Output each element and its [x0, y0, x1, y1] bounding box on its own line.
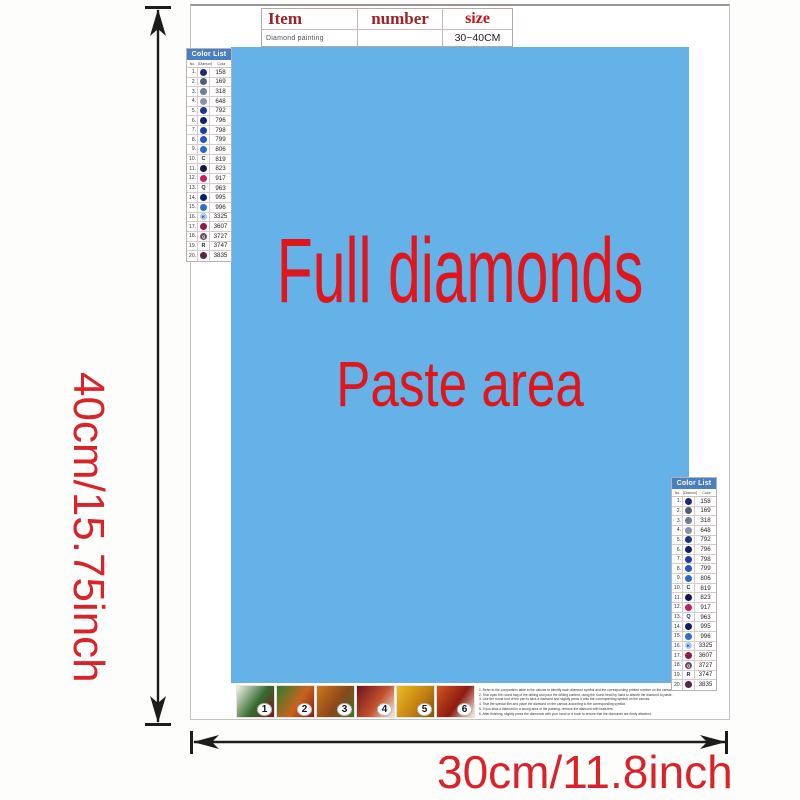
color-list-row: 14.995: [187, 193, 231, 203]
color-list-dmc-code: 796: [695, 546, 716, 553]
color-list-row: 15.996: [672, 632, 716, 642]
color-list-title: Color List: [187, 49, 231, 60]
paste-area-title-line2: Paste area: [336, 352, 584, 416]
diamond-symbol-icon: C: [198, 155, 210, 164]
color-list-dmc-code: 917: [210, 175, 231, 182]
color-list-row: 5.792: [672, 536, 716, 546]
diamond-symbol-icon: [683, 603, 695, 612]
diamond-symbol-icon: [683, 555, 695, 564]
color-list-row: 10.C819: [672, 584, 716, 594]
diamond-symbol-icon: [198, 251, 210, 261]
diamond-symbol-icon: C: [683, 584, 695, 593]
color-list: Color List No. Diamond Color 1.1582.1693…: [671, 477, 717, 691]
diamond-symbol-icon: [683, 632, 695, 641]
color-list-dmc-code: 917: [695, 604, 716, 611]
diamond-symbol-icon: [683, 651, 695, 660]
color-list-col-symbol: Diamond: [684, 491, 697, 495]
color-list-dmc-code: 819: [210, 156, 231, 163]
color-list-row: 4.648: [672, 526, 716, 536]
color-list-dmc-code: 3325: [695, 642, 716, 649]
color-list-row: 9.806: [187, 145, 231, 155]
diamond-symbol-icon: [198, 164, 210, 173]
color-list-dmc-code: 798: [210, 127, 231, 134]
item-table-cell-size: 30~40CM: [443, 30, 512, 46]
color-list-col-color: Color: [697, 491, 716, 495]
paste-area-title-line1: Full diamonds: [277, 225, 644, 317]
color-list-dmc-code: 796: [210, 117, 231, 124]
canvas-sheet: Item number size Diamond painting 30~40C…: [190, 4, 730, 720]
step-number-badge: 6: [457, 703, 472, 716]
item-table-header-item: Item: [262, 9, 358, 30]
diamond-symbol-icon: [683, 526, 695, 535]
diamond-symbol-icon: R: [198, 242, 210, 251]
color-list-row: 20.3835: [672, 680, 716, 690]
color-list-dmc-code: 806: [210, 146, 231, 153]
color-list-row: 2.169: [187, 78, 231, 88]
color-list-dmc-code: 792: [210, 107, 231, 114]
color-list-row-number: 8.: [672, 564, 683, 573]
diamond-symbol-icon: [198, 222, 210, 231]
color-list-dmc-code: 169: [695, 507, 716, 514]
color-list-row-number: 14.: [672, 622, 683, 631]
color-list-row: 11.823: [187, 164, 231, 174]
color-list-row-number: 19.: [187, 242, 198, 251]
color-list-row-number: 9.: [187, 145, 198, 154]
color-list-rows: 1.1582.1693.3184.6485.7926.7967.7988.799…: [187, 68, 231, 261]
diamond-symbol-icon: [198, 87, 210, 96]
color-list-col-no: No.: [672, 491, 684, 495]
color-list-dmc-code: 819: [695, 585, 716, 592]
color-list-row: 7.798: [187, 126, 231, 136]
step-number-badge: 3: [337, 703, 352, 716]
paste-area: Full diamonds Paste area: [231, 47, 689, 683]
color-list-row: 10.C819: [187, 155, 231, 165]
color-list-row: 18.Q3727: [187, 232, 231, 242]
color-list-dmc-code: 799: [695, 565, 716, 572]
color-list-row: 13.Q963: [187, 184, 231, 194]
color-list-dmc-code: 648: [695, 527, 716, 534]
height-dimension-arrow: [140, 0, 180, 732]
color-list-row-number: 17.: [672, 651, 683, 660]
color-list-row-number: 16.: [672, 642, 683, 651]
color-list-row-number: 6.: [672, 545, 683, 554]
diamond-symbol-icon: Q: [683, 661, 695, 670]
product-size-diagram: { "dimensions": { "height_label": "40cm/…: [0, 0, 800, 800]
color-list-row-number: 2.: [187, 78, 198, 87]
color-list-dmc-code: 648: [210, 98, 231, 105]
color-list-dmc-code: 823: [695, 594, 716, 601]
diamond-symbol-icon: K: [198, 213, 210, 222]
item-table: Item number size Diamond painting 30~40C…: [261, 8, 513, 47]
color-list-row-number: 9.: [672, 574, 683, 583]
diamond-symbol-icon: [198, 68, 210, 77]
diamond-symbol-icon: [198, 145, 210, 154]
color-list-row: 19.R3747: [187, 242, 231, 252]
color-list-row-number: 10.: [672, 584, 683, 593]
color-list-row-number: 18.: [672, 661, 683, 670]
color-list-row-number: 1.: [187, 68, 198, 77]
color-list-row: 15.996: [187, 203, 231, 213]
color-list-row: 6.796: [187, 116, 231, 126]
step-photo: 5: [396, 685, 435, 718]
instruction-line: 6. After finishing, slightly press the d…: [479, 712, 729, 717]
color-list-dmc-code: 3607: [210, 223, 231, 230]
color-list-row-number: 13.: [672, 613, 683, 622]
diamond-symbol-icon: [683, 622, 695, 631]
diamond-symbol-icon: Q: [198, 232, 210, 241]
color-list-row: 4.648: [187, 97, 231, 107]
diamond-symbol-icon: [198, 126, 210, 135]
item-table-cell-item: Diamond painting: [262, 30, 358, 46]
color-list-row: 5.792: [187, 107, 231, 117]
color-list-col-no: No.: [187, 62, 199, 66]
color-list-row-number: 4.: [187, 97, 198, 106]
color-list-dmc-code: 996: [695, 633, 716, 640]
color-list-col-symbol: Diamond: [199, 62, 212, 66]
color-list-dmc-code: 158: [695, 498, 716, 505]
step-photo: 4: [356, 685, 395, 718]
color-list-dmc-code: 3727: [210, 233, 231, 240]
color-list-dmc-code: 963: [695, 614, 716, 621]
diamond-symbol-icon: [683, 507, 695, 516]
color-list-row-number: 11.: [187, 164, 198, 173]
item-table-header-number: number: [358, 9, 443, 30]
color-list-dmc-code: 169: [210, 78, 231, 85]
color-list-dmc-code: 318: [695, 517, 716, 524]
color-list-dmc-code: 806: [695, 575, 716, 582]
step-photos: 123456: [236, 685, 475, 718]
color-list-row: 20.3835: [187, 251, 231, 261]
step-photo: 2: [276, 685, 315, 718]
color-list-dmc-code: 3325: [210, 213, 231, 220]
color-list-row: 8.799: [672, 564, 716, 574]
color-list-dmc-code: 3747: [210, 242, 231, 249]
color-list-row: 3.318: [187, 87, 231, 97]
color-list-dmc-code: 823: [210, 165, 231, 172]
step-photo: 3: [316, 685, 355, 718]
color-list-row: 13.Q963: [672, 613, 716, 623]
item-table-cell-number: [358, 30, 443, 46]
color-list-dmc-code: 798: [695, 556, 716, 563]
color-list-row: 7.798: [672, 555, 716, 565]
color-list-dmc-code: 318: [210, 88, 231, 95]
step-number-badge: 1: [257, 703, 272, 716]
color-list-row-number: 7.: [672, 555, 683, 564]
color-list-row-number: 10.: [187, 155, 198, 164]
color-list-row: 1.158: [672, 497, 716, 507]
color-list-row: 16.K3325: [187, 213, 231, 223]
color-list-row-number: 20.: [187, 251, 198, 261]
color-list-row: 11.823: [672, 593, 716, 603]
color-list-row-number: 15.: [187, 203, 198, 212]
diamond-symbol-icon: [683, 516, 695, 525]
diamond-symbol-icon: [198, 107, 210, 116]
item-table-header-size: size: [443, 9, 512, 30]
color-list-title: Color List: [672, 478, 716, 489]
diamond-symbol-icon: [683, 545, 695, 554]
step-number-badge: 4: [377, 703, 392, 716]
diamond-symbol-icon: [198, 78, 210, 87]
color-list-row-number: 18.: [187, 232, 198, 241]
diamond-symbol-icon: [683, 564, 695, 573]
color-list-row: 17.3607: [672, 651, 716, 661]
color-list-row-number: 20.: [672, 680, 683, 690]
color-list-row: 6.796: [672, 545, 716, 555]
diamond-symbol-icon: [198, 135, 210, 144]
diamond-symbol-icon: [198, 193, 210, 202]
color-list-dmc-code: 3607: [695, 652, 716, 659]
color-list-row: 1.158: [187, 68, 231, 78]
color-list-dmc-code: 158: [210, 69, 231, 76]
color-list-dmc-code: 792: [695, 536, 716, 543]
step-number-badge: 5: [417, 703, 432, 716]
color-list-dmc-code: 3835: [210, 252, 231, 259]
diamond-symbol-icon: [683, 574, 695, 583]
diamond-symbol-icon: [198, 97, 210, 106]
color-list-row-number: 12.: [672, 603, 683, 612]
color-list-row-number: 3.: [672, 516, 683, 525]
color-list-row-number: 8.: [187, 135, 198, 144]
diamond-symbol-icon: [198, 116, 210, 125]
color-list-row-number: 1.: [672, 497, 683, 506]
diamond-symbol-icon: Q: [198, 184, 210, 193]
color-list-row-number: 5.: [672, 536, 683, 545]
color-list-row: 19.R3747: [672, 671, 716, 681]
step-number-badge: 2: [297, 703, 312, 716]
color-list-col-color: Color: [212, 62, 231, 66]
color-list-row-number: 15.: [672, 632, 683, 641]
color-list-header: No. Diamond Color: [672, 489, 716, 497]
color-list-row: 14.995: [672, 622, 716, 632]
color-list-row-number: 17.: [187, 222, 198, 231]
color-list-row-number: 16.: [187, 213, 198, 222]
color-list-header: No. Diamond Color: [187, 60, 231, 68]
color-list-row: 3.318: [672, 516, 716, 526]
diamond-symbol-icon: K: [683, 642, 695, 651]
color-list-dmc-code: 3835: [695, 681, 716, 688]
color-list-dmc-code: 995: [695, 623, 716, 630]
color-list-row-number: 13.: [187, 184, 198, 193]
color-list-dmc-code: 799: [210, 136, 231, 143]
diamond-symbol-icon: [683, 680, 695, 690]
color-list-row-number: 11.: [672, 593, 683, 602]
diamond-symbol-icon: [198, 174, 210, 183]
color-list-row-number: 12.: [187, 174, 198, 183]
color-list-dmc-code: 3727: [695, 662, 716, 669]
color-list-row: 17.3607: [187, 222, 231, 232]
color-list-row: 2.169: [672, 507, 716, 517]
color-list-row-number: 7.: [187, 126, 198, 135]
color-list-row: 12.917: [672, 603, 716, 613]
color-list-dmc-code: 3747: [695, 671, 716, 678]
color-list-dmc-code: 996: [210, 204, 231, 211]
color-list-row: 12.917: [187, 174, 231, 184]
color-list-row-number: 3.: [187, 87, 198, 96]
color-list-row-number: 4.: [672, 526, 683, 535]
color-list-rows: 1.1582.1693.3184.6485.7926.7967.7988.799…: [672, 497, 716, 690]
color-list-row-number: 2.: [672, 507, 683, 516]
step-photo: 6: [436, 685, 475, 718]
diamond-symbol-icon: [198, 203, 210, 212]
diamond-symbol-icon: [683, 593, 695, 602]
color-list-row-number: 5.: [187, 107, 198, 116]
color-list: Color List No. Diamond Color 1.1582.1693…: [186, 48, 232, 262]
diamond-symbol-icon: [683, 497, 695, 506]
diamond-symbol-icon: Q: [683, 613, 695, 622]
color-list-row: 9.806: [672, 574, 716, 584]
color-list-row-number: 19.: [672, 671, 683, 680]
color-list-row: 16.K3325: [672, 642, 716, 652]
color-list-row: 8.799: [187, 135, 231, 145]
color-list-row-number: 14.: [187, 193, 198, 202]
color-list-row-number: 6.: [187, 116, 198, 125]
diamond-symbol-icon: R: [683, 671, 695, 680]
color-list-row: 18.Q3727: [672, 661, 716, 671]
instruction-text: 1. Refer to the comparison table in the …: [479, 688, 729, 716]
step-photo: 1: [236, 685, 275, 718]
color-list-dmc-code: 995: [210, 194, 231, 201]
diamond-symbol-icon: [683, 536, 695, 545]
color-list-dmc-code: 963: [210, 185, 231, 192]
